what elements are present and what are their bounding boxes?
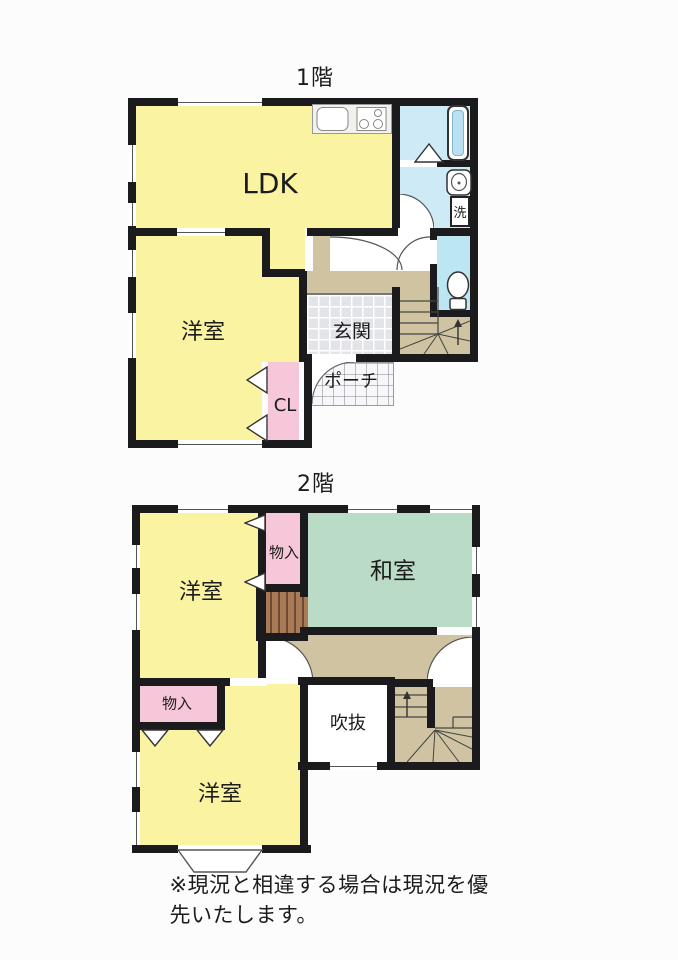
window [178,98,262,106]
folding-door-triangle-icon [246,414,268,442]
window [128,313,136,358]
floor2-plan: 洋室 物入 和室 物入 吹抜 洋室 [132,505,480,853]
folding-door-triangle-icon [244,572,266,592]
folding-door-triangle-icon [141,729,169,747]
laundry-space: 洗 [450,196,470,227]
door-swing-arc-icon [330,236,430,271]
wall [392,106,400,236]
room-label-genkan: 玄関 [333,323,371,342]
wall [393,679,433,687]
folding-door-triangle-icon [196,729,224,747]
room-label-bedroom-2f-top: 洋室 [179,582,223,604]
door-opening [398,228,430,236]
wall [299,269,307,362]
folding-door-triangle-icon [244,514,266,532]
room-label-storage-bottom: 物入 [162,697,192,712]
staircase-1f [400,287,470,354]
wall [132,678,230,686]
wall [304,354,312,448]
room-bedroom-1f-nook [262,277,299,362]
room-label-void: 吹抜 [330,715,366,733]
floor1-title: 1階 [296,60,334,92]
sliding-door-opening [177,228,225,236]
room-label-washitsu: 和室 [370,561,416,584]
window [348,505,397,513]
door-opening [312,354,356,362]
door-opening [305,236,313,271]
bathtub-icon [447,105,469,161]
door-opening [230,678,267,686]
floor1-plan: 洗 LDK 洋室 玄関 ポーチ CL [128,98,478,448]
genkan-step-line [307,293,392,295]
window [128,203,136,226]
room-label-porch: ポーチ [324,373,378,391]
floorplan-page: 1階 [0,0,678,960]
room-ldk-extension [270,228,305,269]
window [472,547,480,574]
kitchen-sink-icon [317,108,348,131]
staircase-2f [395,687,472,762]
wall [300,627,437,635]
window [132,812,140,845]
room-label-bedroom-2f-bottom: 洋室 [198,784,242,806]
window [472,597,480,627]
floor2-title: 2階 [297,466,335,498]
wall [392,287,400,360]
window [132,594,140,630]
room-label-storage-top: 物入 [269,546,299,561]
window [128,250,136,277]
wall [298,762,480,770]
window [128,145,136,182]
room-label-bedroom-1f: 洋室 [181,322,225,344]
door-swing-arc-icon [398,194,434,230]
window [178,505,228,513]
disclaimer-note: ※現況と相違する場合は現況を優先いたします。 [170,869,509,929]
wall [298,677,395,685]
kitchen-counter [312,104,392,134]
wall [387,685,395,762]
wall [472,505,480,770]
folding-door-triangle-icon [246,366,268,394]
room-label-closet: CL [274,397,297,415]
folding-door-triangle-icon [414,143,444,163]
window [430,505,472,513]
door-swing-arc-icon [427,637,473,683]
laundry-label: 洗 [453,202,466,221]
door-opening [430,240,437,264]
room-label-ldk: LDK [242,170,298,198]
window [132,545,140,568]
window [132,752,140,787]
window [330,762,377,770]
washbasin-icon [446,169,472,196]
